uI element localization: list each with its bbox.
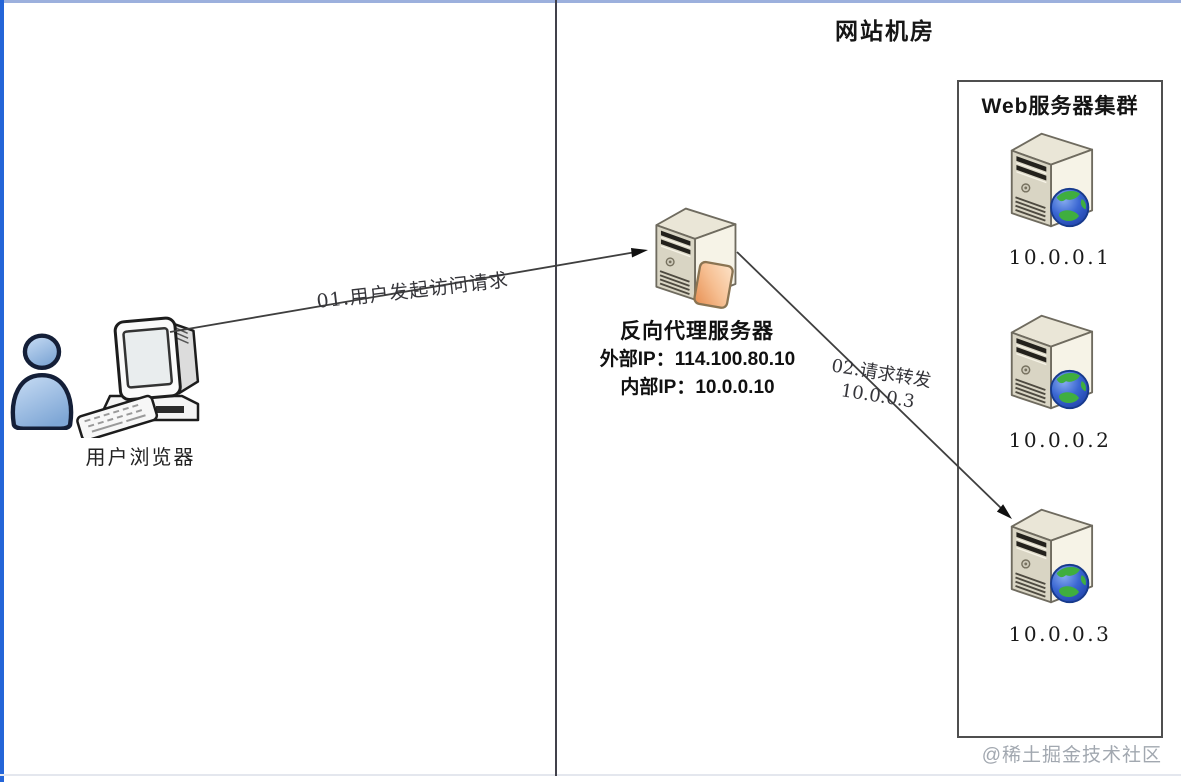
flow-label-forward: 02.请求转发 10.0.0.3 [809,352,950,419]
top-accent-border [0,0,1181,3]
web-server-icon-2 [1003,312,1099,426]
orange-panel-icon [694,261,734,308]
web-server-icon-1 [1003,130,1099,244]
watermark: @稀土掘金技术社区 [930,740,1162,767]
internal-ip-label: 内部IP： [620,377,695,398]
person-icon [4,330,78,430]
desktop-computer-icon [76,314,206,438]
diagram-canvas: 网站机房 [0,0,1181,782]
proxy-name: 反向代理服务器 [572,315,822,345]
internal-ip-value: 10.0.0.10 [695,377,774,398]
globe-icon [1051,371,1088,408]
server-ip-label-3: 10.0.0.3 [959,622,1161,646]
flow-label-request: 01.用户发起访问请求 [299,263,526,315]
arrowhead-icon [631,248,648,258]
proxy-server-icon [649,204,741,318]
server-ip-label-1: 10.0.0.1 [959,245,1161,269]
globe-icon [1051,189,1088,226]
server-ip-label-2: 10.0.0.2 [959,428,1161,452]
globe-icon [1051,565,1088,602]
external-ip-value: 114.100.80.10 [675,349,795,370]
web-server-icon-3 [1003,506,1099,620]
datacenter-boundary-line [555,0,557,776]
proxy-internal-ip: 内部IP：10.0.0.10 [560,372,835,399]
bottom-hairline [0,774,1181,776]
cluster-title: Web服务器集群 [959,90,1161,120]
web-cluster-box: Web服务器集群 10.0.0.1 [957,80,1163,738]
datacenter-title: 网站机房 [810,12,960,46]
user-browser-label: 用户浏览器 [68,441,213,470]
monitor-icon [114,316,199,401]
external-ip-label: 外部IP： [600,349,675,370]
proxy-external-ip: 外部IP：114.100.80.10 [560,344,835,371]
